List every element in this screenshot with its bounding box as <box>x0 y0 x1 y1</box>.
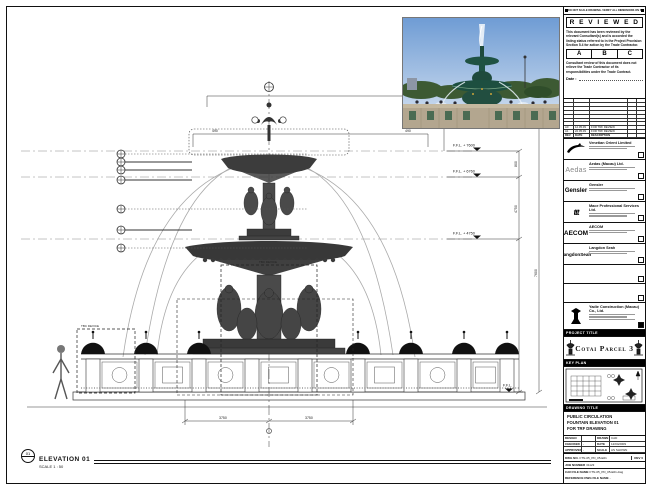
revision-cell <box>628 134 637 137</box>
fountain-photo-inset <box>402 17 560 129</box>
company-name: Gensler <box>589 183 643 187</box>
company-address <box>589 230 643 233</box>
review-checkbox[interactable] <box>638 152 644 158</box>
photo-wall-rail <box>403 104 559 108</box>
dim-label: 7600 <box>534 269 538 277</box>
revision-cell <box>574 111 590 114</box>
tbc-note: TBC DEVICE <box>259 260 277 264</box>
revision-cell <box>564 107 574 110</box>
reviewed-paragraph-1: This document has been reviewed by the r… <box>566 30 643 47</box>
revision-cell: A1 <box>564 130 574 133</box>
revision-cell <box>564 119 574 122</box>
company-box-gensler: Gensler Gensler <box>564 181 645 202</box>
reviewed-paragraph-2: Consultant review of this document does … <box>566 61 643 74</box>
review-checkbox[interactable] <box>638 194 644 200</box>
reference-label: REFERENCE DWG FILE NAME <box>564 476 609 480</box>
company-name: Langdon Seah <box>589 246 643 250</box>
revision-cell <box>590 119 628 122</box>
review-checkbox[interactable] <box>638 173 644 179</box>
dwg-number-row: DWG NO. FTN-05_PD_05-E01 REV 0 <box>564 454 645 462</box>
revision-cell <box>574 103 590 106</box>
grade-c-cell[interactable]: C <box>618 50 642 58</box>
project-title-strip: PROJECT TITLE <box>564 330 645 337</box>
credit-value: CAD <box>610 436 645 441</box>
revision-cell <box>590 103 628 106</box>
revision-cell <box>628 115 637 118</box>
revision-cell: 22.05.09 <box>574 130 590 133</box>
revision-cell <box>628 99 637 102</box>
level-label: F.F.L. <box>503 384 512 388</box>
revision-cell <box>628 107 637 110</box>
sheet-frame: 490 490 <box>6 6 646 484</box>
revision-cell <box>564 122 574 125</box>
grade-a-cell[interactable]: A <box>567 50 592 58</box>
company-address <box>589 188 643 191</box>
credit-label: DATE <box>596 442 610 447</box>
company-box-mace: ttt Mace Professional Services Ltd. <box>564 202 645 223</box>
date-label: Date : <box>566 77 577 81</box>
revision-cell <box>590 107 628 110</box>
review-checkbox[interactable] <box>638 257 644 263</box>
job-label: JOB NUMBER <box>564 463 585 467</box>
revision-cell <box>564 103 574 106</box>
reference-dwg-row: REFERENCE DWG FILE NAME - <box>564 475 645 481</box>
key-plan-strip: KEY PLAN <box>564 360 645 367</box>
dwg-label: DWG NO. <box>564 456 579 460</box>
revision-cell <box>628 122 637 125</box>
key-plan-box <box>564 367 645 405</box>
title-block-column: DO NOT SCALE DRAWING. VERIFY ALL DIMENSI… <box>563 7 645 483</box>
revision-cell: REV <box>564 134 574 137</box>
fountain-ornament-icon <box>634 340 643 356</box>
drawing-title-line: FOR TRF DRAWING <box>567 426 642 432</box>
reviewed-stamp: R E V I E W E D This document has been r… <box>564 15 645 99</box>
credit-value: AS SHOWN <box>610 447 645 452</box>
aedas-logo: Aedas <box>564 160 588 180</box>
revision-cell <box>637 115 645 118</box>
right-dim-chains <box>516 94 542 394</box>
revision-cell <box>637 134 645 137</box>
company-address <box>589 251 643 254</box>
revision-cell <box>637 122 645 125</box>
revision-cell <box>628 103 637 106</box>
company-address <box>589 213 643 216</box>
distant-building <box>407 78 417 90</box>
dim-label: 800 <box>514 161 518 167</box>
revision-cell <box>564 99 574 102</box>
revision-cell <box>637 126 645 129</box>
revision-cell: DESCRIPTION <box>590 134 628 137</box>
elevation-bubble-number: 01 <box>26 451 30 456</box>
revision-cell <box>574 99 590 102</box>
revision-cell <box>637 119 645 122</box>
revision-cell <box>564 111 574 114</box>
revision-cell <box>590 111 628 114</box>
drawing-sheet-page: 490 490 <box>0 0 650 488</box>
revision-table: A012.05.09FOR TRF REVIEWA122.05.09FOR TR… <box>564 99 645 139</box>
grade-b-cell[interactable]: B <box>592 50 617 58</box>
review-checkbox[interactable] <box>638 276 644 282</box>
project-title-text: Cotai Parcel 3 <box>575 344 634 353</box>
revision-cell <box>574 107 590 110</box>
dim-label: 4750 <box>514 205 518 213</box>
credit-value <box>582 436 596 441</box>
reviewed-date-row: Date : <box>566 76 643 81</box>
level-label: F.F.L. + 4750 <box>453 232 475 236</box>
credit-label: DRAWN <box>596 436 610 441</box>
upper-figures <box>239 183 299 240</box>
revision-cell: 12.05.09 <box>574 126 590 129</box>
credit-label: SCALE <box>596 447 610 452</box>
job-number-row: JOB NUMBER 31123 <box>564 462 645 469</box>
company-name: Venetian Orient Limited <box>589 141 643 145</box>
elevation-bubble: 01 <box>21 449 35 463</box>
elevation-scale-text: SCALE 1 : 50 <box>39 464 551 469</box>
revision-cell <box>628 119 637 122</box>
cad-file-value: FTN-05_PD_05-E01.dwg <box>589 470 646 474</box>
credits-table: DESIGN DRAWN CAD CHECKED - DATE 12/04/20… <box>564 436 645 454</box>
sheet-note-strip: DO NOT SCALE DRAWING. VERIFY ALL DIMENSI… <box>564 7 645 15</box>
contractor-name: Yadie Construction (Macau) Co., Ltd. <box>589 305 643 313</box>
revision-cell <box>564 115 574 118</box>
contractor-address <box>589 314 643 319</box>
empty-consultant-box <box>564 265 645 284</box>
revision-cell: FOR TRF REVIEW <box>590 126 628 129</box>
revision-cell <box>637 107 645 110</box>
company-box-aedas: Aedas Aedas (Macau) Ltd. <box>564 160 645 181</box>
level-markers: F.F.L. + 7600 F.F.L. + 6760 F.F.L. + 475… <box>447 144 519 393</box>
contractor-box: Yadie Construction (Macau) Co., Ltd. <box>564 303 645 330</box>
contractor-mark <box>638 322 644 328</box>
level-label: F.F.L. + 6760 <box>453 170 475 174</box>
revision-cell <box>574 119 590 122</box>
tbc-note: TBC DEVICE <box>81 324 99 328</box>
revision-cell <box>628 126 637 129</box>
review-checkbox[interactable] <box>638 295 644 301</box>
credit-label: DESIGN <box>564 436 582 441</box>
revision-cell <box>637 111 645 114</box>
revision-cell <box>628 111 637 114</box>
company-address <box>589 167 643 170</box>
mace-logo: ttt <box>564 202 588 222</box>
lower-figures <box>193 275 345 354</box>
review-grade-row: A B C <box>566 49 643 59</box>
cad-file-label: CAD FILE NAME <box>564 470 589 474</box>
level-label: F.F.L. + 7600 <box>453 144 475 148</box>
fountain-ornament-icon <box>566 340 575 356</box>
revision-cell <box>637 103 645 106</box>
middle-basin <box>185 241 353 276</box>
elevation-title-block: 01 ELEVATION 01 SCALE 1 : 50 <box>21 449 551 469</box>
credit-label: CHECKED <box>564 442 582 447</box>
review-checkbox[interactable] <box>638 236 644 242</box>
drawing-title-strip: DRAWING TITLE <box>564 405 645 412</box>
key-plan-drawing <box>565 368 643 403</box>
revision-cell <box>574 115 590 118</box>
credit-value: 12/04/2009 <box>610 442 645 447</box>
company-name: Aedas (Macau) Ltd. <box>589 162 643 166</box>
elevation-drawing-area: 490 490 <box>7 7 563 483</box>
dwg-number: FTN-05_PD_05-E01 <box>579 456 632 460</box>
revision-cell: A0 <box>564 126 574 129</box>
project-title-box: Cotai Parcel 3 <box>564 337 645 360</box>
revision-cell <box>574 122 590 125</box>
company-name: AECOM <box>589 225 643 229</box>
contractor-logo <box>564 303 588 329</box>
revision-cell <box>637 130 645 133</box>
company-box-aecom: AECOM AECOM <box>564 223 645 244</box>
revision-cell <box>590 122 628 125</box>
revision-cell: DATE <box>574 134 590 137</box>
company-address <box>589 146 643 149</box>
empty-consultant-box <box>564 284 645 303</box>
revision-cell <box>590 115 628 118</box>
review-checkbox[interactable] <box>638 215 644 221</box>
venetian-logo <box>564 139 588 159</box>
company-box-langdonseah: LangdonSeah Langdon Seah <box>564 244 645 265</box>
wall-panels <box>86 359 514 392</box>
aecom-logo: AECOM <box>564 223 588 243</box>
elevation-title-text: ELEVATION 01 <box>39 456 90 463</box>
revision-cell <box>637 99 645 102</box>
revision-cell: FOR TRF REVIEW <box>590 130 628 133</box>
revision-value: REV 0 <box>631 456 645 460</box>
corner-mark <box>641 9 644 12</box>
company-box-venetian: Venetian Orient Limited <box>564 139 645 160</box>
upper-basin <box>221 155 317 184</box>
dim-label: 3750 <box>219 416 227 420</box>
sheet-note-text: DO NOT SCALE DRAWING. VERIFY ALL DIMENSI… <box>568 9 641 12</box>
credits-row: APPROVED - SCALE AS SHOWN <box>564 447 645 453</box>
credit-label: APPROVED <box>564 447 582 452</box>
langdonseah-logo: LangdonSeah <box>564 244 588 264</box>
dim-label: 490 <box>212 129 218 133</box>
revision-header-row: REVDATEDESCRIPTION <box>564 134 645 138</box>
job-number: 31123 <box>585 463 645 467</box>
finial <box>252 83 286 142</box>
credit-value: - <box>582 442 596 447</box>
company-name: Mace Professional Services Ltd. <box>589 204 643 212</box>
fountain-photo <box>403 18 559 128</box>
date-fill-line[interactable] <box>579 76 643 81</box>
credit-value: - <box>582 447 596 452</box>
revision-cell <box>628 130 637 133</box>
drawing-title-box: PUBLIC CIRCULATION FOUNTAIN ELEVATION 01… <box>564 412 645 436</box>
gensler-logo: Gensler <box>564 181 588 201</box>
reference-value: - <box>609 476 645 480</box>
scale-figure <box>53 345 69 399</box>
revision-cell <box>590 99 628 102</box>
reviewed-title: R E V I E W E D <box>566 17 643 28</box>
dim-label: 3750 <box>305 416 313 420</box>
title-underline <box>94 460 551 461</box>
